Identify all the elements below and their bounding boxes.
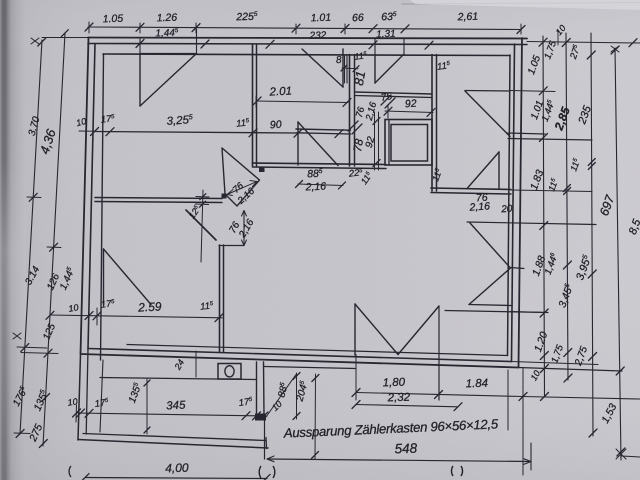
svg-text:2.01: 2.01: [268, 85, 292, 98]
svg-text:345: 345: [166, 399, 186, 412]
svg-text:2.59: 2.59: [137, 299, 162, 314]
svg-text:1.05: 1.05: [102, 13, 123, 26]
svg-text:20: 20: [500, 204, 513, 216]
svg-text:90: 90: [270, 119, 283, 132]
svg-text:1.31: 1.31: [376, 29, 396, 41]
svg-text:4,00: 4,00: [165, 461, 189, 476]
svg-text:2,16: 2,16: [304, 180, 326, 193]
svg-text:1.01: 1.01: [310, 12, 331, 25]
svg-text:1,80: 1,80: [382, 377, 405, 390]
svg-text:232: 232: [308, 30, 326, 42]
svg-text:548: 548: [394, 441, 418, 457]
svg-text:2,32: 2,32: [386, 392, 410, 405]
svg-text:92: 92: [405, 98, 418, 111]
svg-text:2,16: 2,16: [468, 200, 490, 213]
svg-text:66: 66: [352, 12, 364, 24]
svg-text:10: 10: [68, 302, 80, 314]
svg-text:81: 81: [351, 70, 368, 87]
svg-text:3,255: 3,255: [166, 113, 193, 128]
svg-text:2,61: 2,61: [456, 11, 478, 24]
svg-text:1.26: 1.26: [156, 12, 177, 25]
svg-text:1.84: 1.84: [465, 378, 488, 391]
svg-text:10: 10: [67, 396, 78, 407]
